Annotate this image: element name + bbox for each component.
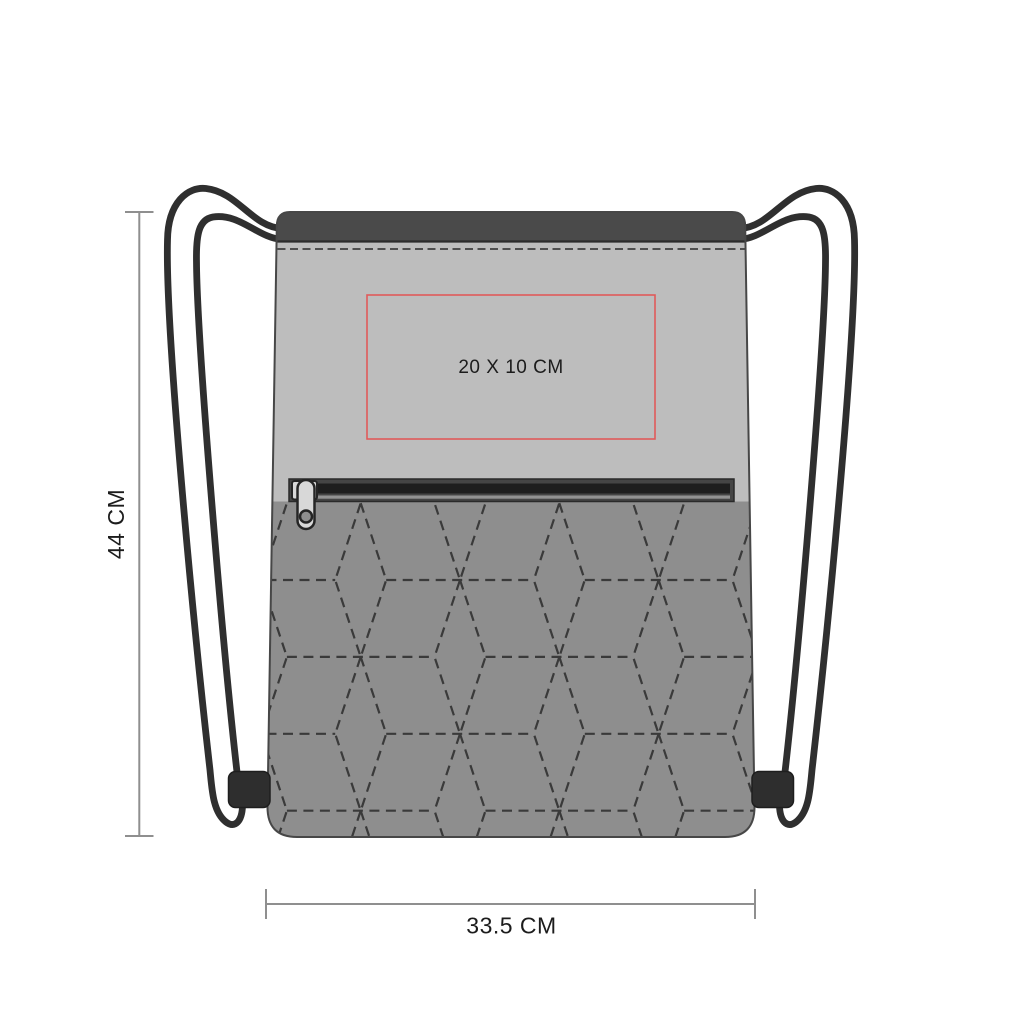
quilted-panel xyxy=(240,502,785,838)
cord-left-outer xyxy=(167,188,282,824)
page-root: 44 CM 33.5 CM xyxy=(0,0,1024,1024)
zipper-pull-hole xyxy=(300,511,312,523)
cord-right-outer xyxy=(740,188,855,824)
height-dimension xyxy=(125,212,154,836)
print-area-label: 20 X 10 CM xyxy=(458,357,563,378)
zipper-teeth xyxy=(293,484,730,494)
corner-tab-right xyxy=(752,772,794,808)
zipper-stripe xyxy=(293,496,730,499)
top-band xyxy=(260,205,770,241)
product-diagram: 44 CM 33.5 CM xyxy=(0,0,1024,1024)
width-dimension-label: 33.5 CM xyxy=(466,913,556,939)
corner-tab-left xyxy=(229,772,271,808)
height-dimension-label: 44 CM xyxy=(103,489,129,559)
